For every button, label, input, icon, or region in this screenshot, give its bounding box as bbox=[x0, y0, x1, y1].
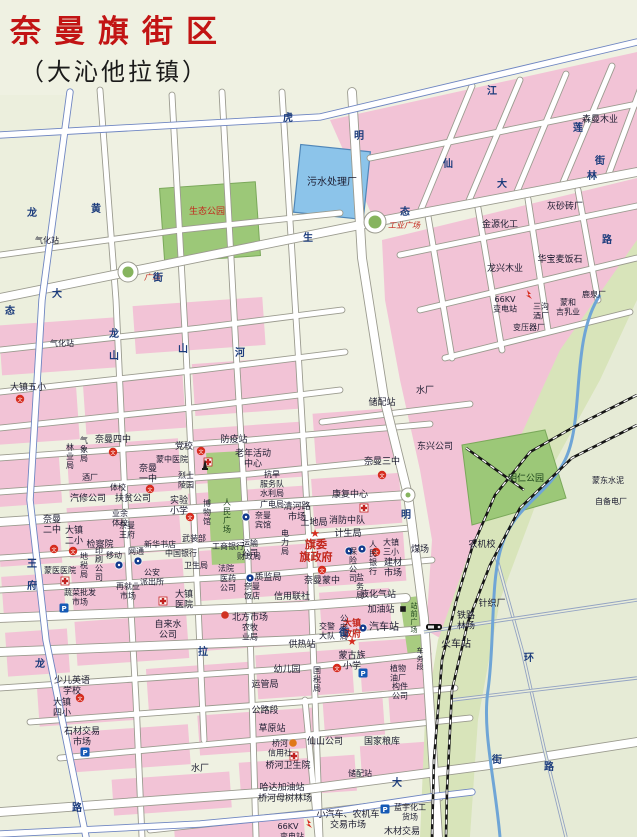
street-name-label: 路 bbox=[544, 760, 555, 773]
navy-icon-part bbox=[362, 627, 364, 629]
parking-icon: P bbox=[381, 805, 390, 815]
school-icon-part: 文 bbox=[147, 487, 152, 494]
cross-icon-part bbox=[62, 580, 68, 582]
street-name-label: 江 bbox=[487, 84, 497, 97]
street-name-label: 路 bbox=[72, 801, 83, 814]
street-name-label: 仙 bbox=[443, 157, 453, 170]
street-name-label: 龙 bbox=[34, 657, 45, 670]
navy-icon bbox=[115, 561, 123, 569]
place-label: 扶贫公司 bbox=[115, 492, 151, 504]
school-icon-part: 文 bbox=[379, 473, 384, 480]
place-label: 桥河母树林场 bbox=[258, 792, 312, 804]
place-label: 人民广场 bbox=[223, 498, 231, 534]
place-label: 铁路林场 bbox=[457, 609, 475, 632]
place-label: 66KV bbox=[278, 822, 299, 831]
place-label: 博物馆 bbox=[203, 498, 211, 526]
street-name-label: 府 bbox=[27, 579, 37, 592]
place-label: 交警大队 bbox=[319, 621, 335, 641]
street-name-label: 大 bbox=[392, 776, 402, 789]
street-name-label: 王 bbox=[27, 558, 37, 570]
plaza-label: 工业广场 bbox=[388, 221, 421, 230]
street-name-label: 街 bbox=[491, 753, 502, 766]
place-label: 酒厂 bbox=[82, 473, 98, 482]
place-label: 地税局 bbox=[80, 551, 88, 579]
roundabout-green bbox=[406, 493, 411, 498]
place-label: 站前广场 bbox=[411, 601, 418, 634]
place-label: 桥河卫生院 bbox=[265, 759, 310, 771]
street-name-label: 明 bbox=[401, 509, 411, 521]
place-label: 北方市场 bbox=[232, 611, 268, 623]
navy-icon bbox=[358, 545, 366, 553]
reddot-icon bbox=[221, 611, 229, 619]
place-label: 财政局 bbox=[237, 551, 261, 561]
place-label: 草原站 bbox=[258, 722, 285, 734]
train-icon-part bbox=[438, 626, 441, 629]
place-label: 水利局 bbox=[260, 488, 284, 498]
street-name-label: 莲 bbox=[573, 121, 583, 134]
train-icon bbox=[426, 624, 442, 630]
place-label: 自备电厂 bbox=[595, 496, 627, 506]
street-name-label: 山 bbox=[178, 342, 188, 355]
map-subtitle: （大沁他拉镇） bbox=[20, 52, 209, 87]
place-label: 华宝麦饭石 bbox=[537, 253, 582, 265]
place-label: 水厂 bbox=[191, 762, 209, 774]
place-label: 印刷公司 bbox=[95, 546, 103, 582]
place-label: 实验小学 bbox=[170, 494, 188, 517]
place-label: 大镇三小 bbox=[383, 537, 399, 557]
blacksq-icon-part bbox=[400, 606, 406, 612]
street-name-label: 山 bbox=[109, 349, 119, 362]
place-label: 生态公园 bbox=[189, 205, 225, 217]
cross-icon bbox=[360, 504, 368, 512]
school-icon-part: 文 bbox=[319, 568, 324, 575]
place-label: 车务段 bbox=[417, 646, 424, 671]
place-label: 电力局 bbox=[281, 528, 289, 556]
place-label: 运管局 bbox=[251, 678, 278, 690]
place-label: 卫生局 bbox=[184, 560, 208, 570]
place-label: 土地局 bbox=[300, 516, 327, 528]
place-label: 奈曼四中 bbox=[95, 433, 131, 445]
street-name-label: 拉 bbox=[198, 645, 208, 658]
place-label: 计生局 bbox=[334, 527, 361, 539]
place-label: 烈士陵园 bbox=[178, 470, 194, 490]
place-label: 针织厂 bbox=[478, 597, 505, 609]
navy-icon bbox=[246, 574, 254, 582]
street-name-label: 生 bbox=[303, 231, 313, 244]
parking-icon: P bbox=[60, 604, 69, 614]
place-label: 网通 bbox=[128, 546, 144, 556]
street-name-label: 态 bbox=[5, 304, 15, 317]
place-label: 业余体校 bbox=[112, 508, 128, 528]
place-label: 人民银行 bbox=[369, 540, 377, 576]
parking-icon-part: P bbox=[82, 749, 87, 757]
place-label: 汽修公司 bbox=[70, 492, 106, 504]
place-label: 东兴公司 bbox=[417, 440, 453, 452]
place-label: 水厂 bbox=[416, 384, 434, 396]
parking-icon-part: P bbox=[61, 605, 66, 613]
place-label: 幼儿园 bbox=[273, 663, 300, 675]
school-icon-part: 文 bbox=[187, 515, 192, 522]
street-name-label: 街 bbox=[594, 154, 605, 167]
parking-icon: P bbox=[81, 748, 90, 758]
place-label: 森曼木业 bbox=[582, 113, 618, 125]
place-label: 移动 bbox=[106, 550, 122, 560]
place-label: 公路段 bbox=[251, 704, 278, 716]
school-icon-part: 文 bbox=[110, 450, 115, 457]
place-label: 防疫站 bbox=[220, 433, 247, 445]
school-icon-part: 文 bbox=[51, 547, 56, 554]
street-name-label: 黄 bbox=[91, 202, 101, 215]
train-icon-part bbox=[428, 626, 434, 629]
place-label: 中国银行 bbox=[165, 548, 197, 558]
place-label: 奈曼三中 bbox=[364, 455, 400, 467]
place-label: 康复中心 bbox=[332, 488, 368, 500]
place-label: 气化站 bbox=[35, 235, 59, 245]
place-label: 66KV变电站 bbox=[493, 295, 517, 314]
navy-icon-part bbox=[245, 516, 247, 518]
street-name-label: 河 bbox=[235, 347, 245, 359]
place-label: 信用联社 bbox=[274, 590, 310, 602]
street-name-label: 虎 bbox=[283, 111, 293, 124]
street-name-label: 林 bbox=[587, 169, 598, 182]
place-label: 金源化工 bbox=[482, 218, 518, 230]
place-label: 气化站 bbox=[50, 338, 74, 348]
place-label: 大镇五小 bbox=[10, 381, 46, 393]
place-label: 奈曼饭店 bbox=[244, 581, 260, 601]
school-icon-part: 文 bbox=[70, 549, 75, 556]
roundabout-green bbox=[369, 216, 382, 229]
map-title: 奈曼旗街区 bbox=[10, 6, 230, 51]
place-label: 植物油厂 bbox=[390, 663, 406, 683]
place-label: 液化气站 bbox=[360, 588, 396, 600]
navy-icon-part bbox=[249, 577, 251, 579]
place-label: 储配站 bbox=[348, 768, 372, 778]
place-label: 鹿泉厂 bbox=[582, 289, 606, 299]
place-label: 农机校 bbox=[468, 538, 495, 550]
place-label: 气象局 bbox=[80, 435, 88, 463]
place-label: 蒙东水泥 bbox=[592, 475, 624, 485]
monument-icon-part bbox=[202, 468, 208, 470]
orangedot-icon-part bbox=[289, 739, 297, 747]
place-label: 工商银行 bbox=[212, 541, 244, 551]
place-label: 大镇四小 bbox=[53, 696, 71, 719]
street-name-label: 路 bbox=[602, 233, 613, 246]
place-label: 武装部 bbox=[182, 533, 206, 543]
place-label: 农牧业局 bbox=[242, 622, 258, 642]
place-label: 三沟酒厂 bbox=[533, 301, 549, 321]
parking-icon-part: P bbox=[360, 670, 365, 678]
place-label: 蒙中医院 bbox=[156, 454, 188, 464]
navy-icon bbox=[242, 513, 250, 521]
place-label: 变电站 bbox=[280, 831, 304, 837]
place-label: 消防中队 bbox=[329, 514, 365, 526]
roundabout-green bbox=[123, 267, 134, 278]
place-label: 体校 bbox=[110, 482, 126, 492]
place-label: 蒙医医院 bbox=[44, 565, 76, 575]
place-label: 木材交易 bbox=[384, 825, 420, 837]
school-icon-part: 文 bbox=[77, 696, 82, 703]
street-name-label: 大 bbox=[497, 177, 507, 190]
place-label: 大镇二小 bbox=[65, 524, 83, 547]
navy-icon bbox=[134, 557, 142, 565]
place-label: 变压器厂 bbox=[513, 322, 545, 332]
orangedot-icon bbox=[289, 739, 297, 747]
place-label: 医药公司 bbox=[220, 573, 236, 593]
navy-icon-part bbox=[361, 548, 363, 550]
street-name-label: 态 bbox=[400, 205, 410, 218]
place-label: 供热站 bbox=[288, 638, 315, 650]
navy-icon-part bbox=[137, 560, 139, 562]
place-label: 奈曼一中 bbox=[139, 462, 157, 485]
place-label: 明仁公园 bbox=[508, 472, 544, 484]
school-icon-part: 文 bbox=[17, 397, 22, 404]
map-canvas: 文文文文文文文文文文文文★★PPPP污水处理厂生态公园明仁公园人民广场站前广场气… bbox=[0, 0, 637, 837]
street-name-label: 明 bbox=[354, 130, 364, 142]
place-label: 国税局 bbox=[313, 666, 321, 693]
street-name-label: 街 bbox=[338, 626, 349, 639]
place-label: 加油站 bbox=[367, 603, 394, 615]
cross-icon bbox=[159, 597, 167, 605]
place-label: 奈曼二中 bbox=[43, 513, 61, 536]
cross-icon-part bbox=[160, 600, 166, 602]
place-label: 大镇医院 bbox=[175, 588, 193, 611]
navy-icon-part bbox=[118, 564, 120, 566]
cross-icon-part bbox=[361, 507, 367, 509]
street-name-label: 大 bbox=[52, 287, 62, 300]
place-label: 法院 bbox=[218, 563, 234, 573]
map-page: 文文文文文文文文文文文文★★PPPP污水处理厂生态公园明仁公园人民广场站前广场气… bbox=[0, 0, 637, 837]
place-label: 龙兴木业 bbox=[487, 262, 523, 274]
place-label: 国家粮库 bbox=[364, 735, 400, 747]
school-icon-part: 文 bbox=[198, 449, 203, 456]
place-label: 新华书店 bbox=[144, 539, 176, 549]
place-label: 奈曼蒙中 bbox=[304, 574, 340, 586]
place-label: 汽车站 bbox=[369, 620, 399, 633]
place-label: 污水处理厂 bbox=[307, 176, 357, 188]
street-name-label: 街 bbox=[152, 271, 163, 284]
place-label: 党校 bbox=[175, 440, 193, 452]
parking-icon-part: P bbox=[382, 806, 387, 814]
street-name-label: 龙 bbox=[26, 206, 37, 219]
place-label: 林业局 bbox=[66, 442, 74, 470]
cross-icon-part bbox=[205, 461, 211, 463]
street-name-label: 龙 bbox=[108, 327, 119, 340]
blacksq-icon bbox=[400, 606, 406, 612]
place-label: 构件公司 bbox=[392, 681, 408, 701]
place-label: 广电局 bbox=[260, 499, 284, 509]
place-label: 火车站 bbox=[441, 637, 471, 650]
street-name-label: 环 bbox=[524, 652, 534, 664]
place-label: 灰砂砖厂 bbox=[547, 200, 583, 212]
place-label: 储配站 bbox=[368, 396, 395, 408]
reddot-icon-part bbox=[221, 611, 229, 619]
cross-icon bbox=[61, 577, 69, 585]
place-label: 建材市场 bbox=[384, 556, 402, 579]
place-label: 哈达加油站 bbox=[259, 781, 304, 793]
school-icon-part: 文 bbox=[334, 666, 339, 673]
place-label: 仙山公司 bbox=[307, 735, 343, 747]
place-label: 奈曼宾馆 bbox=[255, 510, 271, 530]
place-label: 煤场 bbox=[411, 543, 429, 555]
